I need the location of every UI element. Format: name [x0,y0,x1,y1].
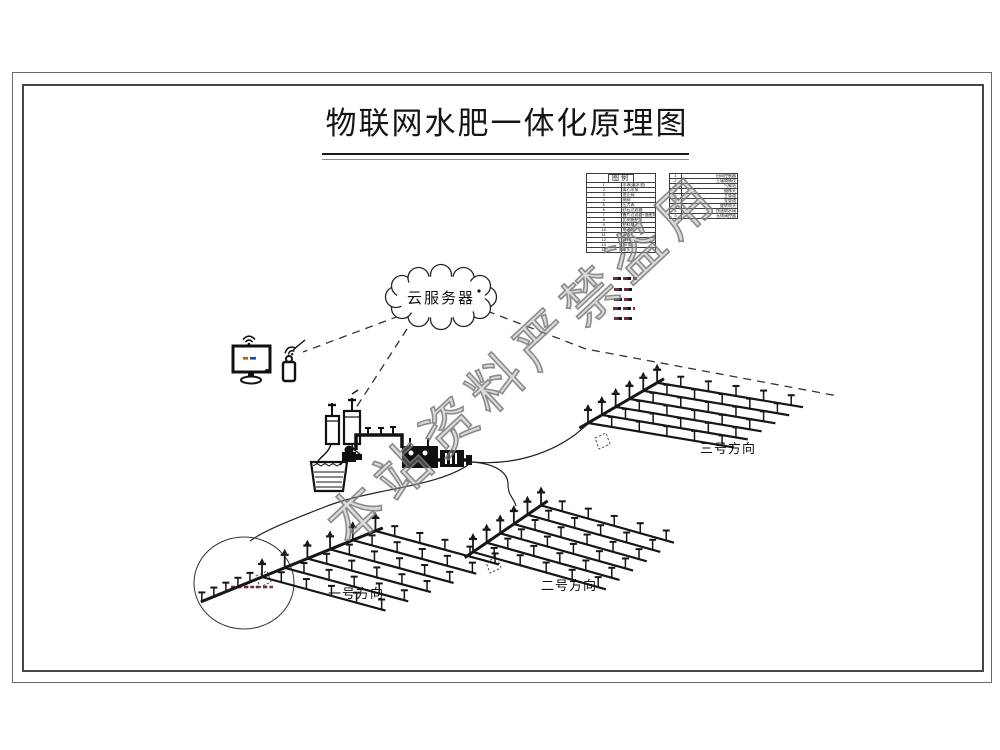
pump-station [311,390,472,491]
suction-hose-a [318,444,331,461]
antenna-line [293,340,305,350]
sprinkler-grids [198,364,803,611]
field-grid-2 [465,486,674,589]
link-cloud-to-station [352,329,407,414]
monitor-screen-dash-blue [250,357,256,360]
zone-marker-3 [595,433,610,449]
field-label-1: 一号方向 [328,586,384,601]
field-label-2: 二号方向 [541,578,597,593]
supply-pipe-field2 [472,462,516,506]
cloud-dot [477,289,480,292]
field-grid-3 [579,364,803,448]
field-label-3: 三号方向 [700,441,756,456]
filter-unit [402,438,438,468]
water-source-tank [311,462,347,491]
monitor-screen-dash-orange [243,357,248,360]
drawing-sheet: 物联网水肥一体化原理图 图例 1水源(蓄水池)2离心水泵3逆止阀4闸阀5压力表6… [0,0,1000,750]
phone-icon [283,362,295,381]
wifi-icon [244,336,255,345]
water-pump [340,446,362,466]
supply-pipe-field1 [250,462,472,541]
supply-pipe-field3 [472,423,589,463]
cloud-server: 云服务器 [386,265,497,330]
cloud-label: 云服务器 [407,290,475,307]
monitor-terminal [233,336,270,383]
link-cloud-to-monitor [303,316,399,352]
phone-terminal [283,340,305,381]
control-valve-unit [440,450,472,467]
monitor-knob [265,369,269,373]
fertilizer-tank-a [326,403,339,444]
main-pipe [356,435,402,450]
monitor-base [241,377,261,384]
field-supply-pipes [250,423,589,541]
schematic-canvas: 云服务器 [0,0,1000,750]
